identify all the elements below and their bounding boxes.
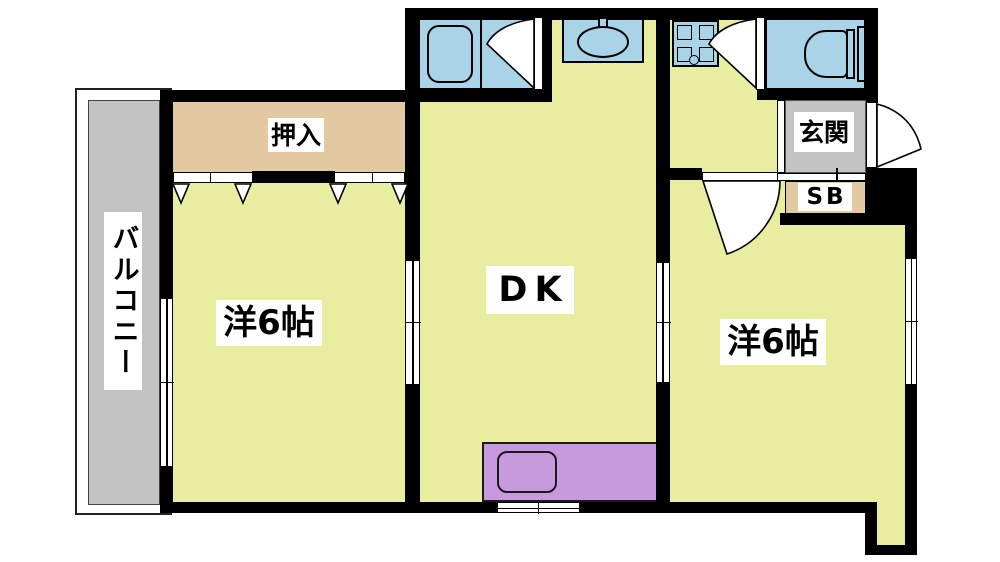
wall-left-room-top xyxy=(160,90,405,102)
label-entrance: 玄関 xyxy=(794,112,854,152)
wall-bath-bottom xyxy=(405,90,552,102)
closet-door-divider-2 xyxy=(372,172,373,183)
closet-door-divider-1 xyxy=(210,172,211,183)
sliding-door-left-dk xyxy=(405,260,420,385)
toilet-door-leaf xyxy=(756,17,765,90)
label-room-left: 洋6帖 xyxy=(216,300,322,346)
bath-door-leaf xyxy=(534,17,543,90)
toilet-tank-back xyxy=(857,26,866,82)
wall-below-shoebox xyxy=(780,213,872,225)
pan-corner-tl xyxy=(677,25,692,40)
wall-right-mid-lower xyxy=(656,383,670,503)
label-shoebox: SB xyxy=(798,183,852,211)
wall-hall-room-divider xyxy=(656,168,702,180)
wall-right-mid-upper xyxy=(656,8,670,262)
sliding-door-dk-right xyxy=(656,262,670,383)
window-balcony xyxy=(160,298,173,467)
pan-corner-br xyxy=(699,47,714,62)
room-door-leaf xyxy=(702,172,778,181)
wall-left-outer-upper xyxy=(160,90,173,298)
shoebox-door-track xyxy=(777,173,866,181)
wall-entrance-corner xyxy=(866,168,917,225)
entrance-door-swing-icon xyxy=(877,104,921,167)
wall-toilet-right xyxy=(866,8,878,103)
label-room-right: 洋6帖 xyxy=(720,319,826,365)
window-right xyxy=(905,258,917,385)
washbasin-bowl xyxy=(577,26,629,58)
room-western-right-notch xyxy=(877,502,905,545)
toilet-icon xyxy=(804,30,848,78)
window-kitchen-bottom xyxy=(497,502,580,513)
kitchen-sink-icon xyxy=(497,451,557,493)
label-balcony: バルコニー xyxy=(104,212,142,390)
toilet-tank-front xyxy=(846,29,855,79)
floor-plan: バルコニー 押入 洋6帖 DK 洋6帖 玄関 SB xyxy=(0,0,1000,562)
pan-drain xyxy=(689,55,699,65)
shoebox-track-tick xyxy=(836,168,838,180)
bathroom-divider xyxy=(480,18,482,90)
entrance-step xyxy=(777,100,785,173)
wall-left-mid-lower xyxy=(405,385,420,503)
label-closet: 押入 xyxy=(268,118,324,152)
bathtub-icon xyxy=(427,25,473,83)
entrance-door-leaf xyxy=(866,102,877,168)
wall-bath-door-side xyxy=(542,8,552,102)
wall-toilet-bottom xyxy=(757,90,878,100)
pan-corner-tr xyxy=(699,25,714,40)
label-dk: DK xyxy=(486,266,574,314)
closet-center-post xyxy=(252,171,335,183)
